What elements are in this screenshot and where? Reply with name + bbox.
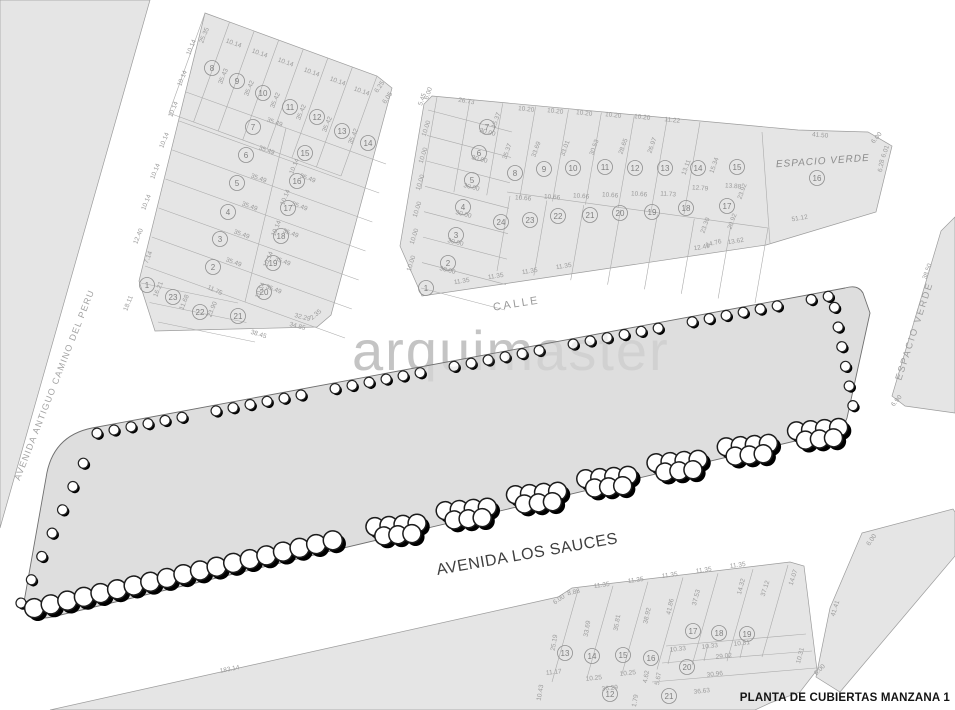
dimension-label: 10.66 xyxy=(544,193,561,201)
lot-number: 1 xyxy=(145,281,150,290)
lot-number: 11 xyxy=(286,103,295,112)
lot-number: 11 xyxy=(601,163,610,172)
dimension-label: 10.14 xyxy=(140,193,153,211)
lot-number: 19 xyxy=(743,630,752,639)
lot-number: 14 xyxy=(694,164,703,173)
lot-number: 4 xyxy=(226,208,231,217)
dimension-label: 41.50 xyxy=(812,131,829,139)
street-label-avenida-los-sauces: AVENIDA LOS SAUCES xyxy=(435,530,619,579)
lot-number: 5 xyxy=(235,179,240,188)
lot-number: 18 xyxy=(715,629,724,638)
roof-slab-black xyxy=(885,334,899,346)
lot-number: 8 xyxy=(513,169,518,178)
dimension-label: 12.40 xyxy=(132,227,145,245)
site-plan-page: arquimaster arquimaster 8910111213147654… xyxy=(0,0,955,710)
lot-number: 12 xyxy=(631,164,640,173)
lot-number: 21 xyxy=(586,211,595,220)
lot-number: 9 xyxy=(235,77,240,86)
lot-number: 12 xyxy=(313,113,322,122)
street-label-calle: CALLE xyxy=(492,294,541,313)
lot-number: 19 xyxy=(648,208,657,217)
lot-number: 22 xyxy=(554,212,563,221)
lot-number: 20 xyxy=(683,663,692,672)
lot-number: 2 xyxy=(211,263,216,272)
dimension-label: 12.79 xyxy=(692,184,709,192)
lot-number: 1 xyxy=(424,284,429,293)
lot-number: 7 xyxy=(251,123,256,132)
dimension-label: 10.66 xyxy=(573,192,590,200)
dimension-label: 10.14 xyxy=(167,100,180,118)
lot-number: 16 xyxy=(647,654,656,663)
lot-number: 21 xyxy=(234,312,243,321)
lot-number: 10 xyxy=(569,164,578,173)
lot-number: 13 xyxy=(338,127,347,136)
dimension-label: 18.11 xyxy=(122,294,135,312)
lot-number: 10 xyxy=(259,89,268,98)
lot-number: 14 xyxy=(588,652,597,661)
dimension-label: 10.66 xyxy=(515,194,532,202)
lot-number: 18 xyxy=(682,204,691,213)
dimension-label: 10.66 xyxy=(631,190,648,198)
dimension-label: 10.14 xyxy=(149,162,162,180)
lot-number: 23 xyxy=(526,216,535,225)
lot-number: 13 xyxy=(661,164,670,173)
lot-number: 14 xyxy=(364,139,373,148)
lot-number: 17 xyxy=(689,627,698,636)
lot-number: 15 xyxy=(619,651,628,660)
lot-number: 22 xyxy=(196,308,205,317)
lot-number: 15 xyxy=(301,149,310,158)
dimension-label: 10.66 xyxy=(602,191,619,199)
lot-number: 8 xyxy=(210,64,215,73)
dimension-label: 11.73 xyxy=(660,190,677,198)
lot-number: 23 xyxy=(169,293,178,302)
watermark-overlay-text: arquimaster xyxy=(352,319,670,382)
lot-number: 3 xyxy=(218,235,223,244)
lot-number: 6 xyxy=(244,151,249,160)
lot-number: 15 xyxy=(733,163,742,172)
lot-number: 21 xyxy=(665,692,674,701)
dimension-label: 38.45 xyxy=(250,329,268,341)
lot-number: 20 xyxy=(616,209,625,218)
parcel-block-top-left xyxy=(139,13,392,331)
site-plan-drawing: arquimaster arquimaster 8910111213147654… xyxy=(0,0,955,710)
dimension-label: 10.14 xyxy=(158,131,171,149)
lot-number: 9 xyxy=(542,165,547,174)
lot-number: 24 xyxy=(497,218,506,227)
lot-number: 16 xyxy=(813,174,822,183)
lot-number: 17 xyxy=(723,202,732,211)
lot-number: 13 xyxy=(561,649,570,658)
plan-title: PLANTA DE CUBIERTAS MANZANA 1 xyxy=(740,692,951,704)
